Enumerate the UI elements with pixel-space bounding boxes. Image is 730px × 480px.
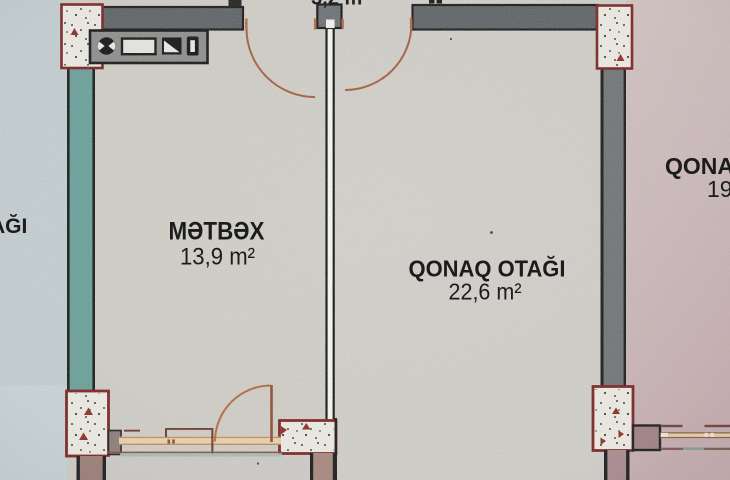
svg-text:3,2 m²: 3,2 m²: [311, 0, 369, 10]
svg-text:AĞI: AĞI: [0, 214, 27, 238]
svg-text:QONAQ OTAĞI: QONAQ OTAĞI: [409, 255, 566, 282]
svg-text:13,9 m²: 13,9 m²: [180, 244, 255, 271]
svg-text:19,4: 19,4: [707, 176, 730, 202]
svg-text:22,6 m²: 22,6 m²: [449, 279, 522, 305]
svg-text:MƏTBƏX: MƏTBƏX: [169, 218, 265, 246]
